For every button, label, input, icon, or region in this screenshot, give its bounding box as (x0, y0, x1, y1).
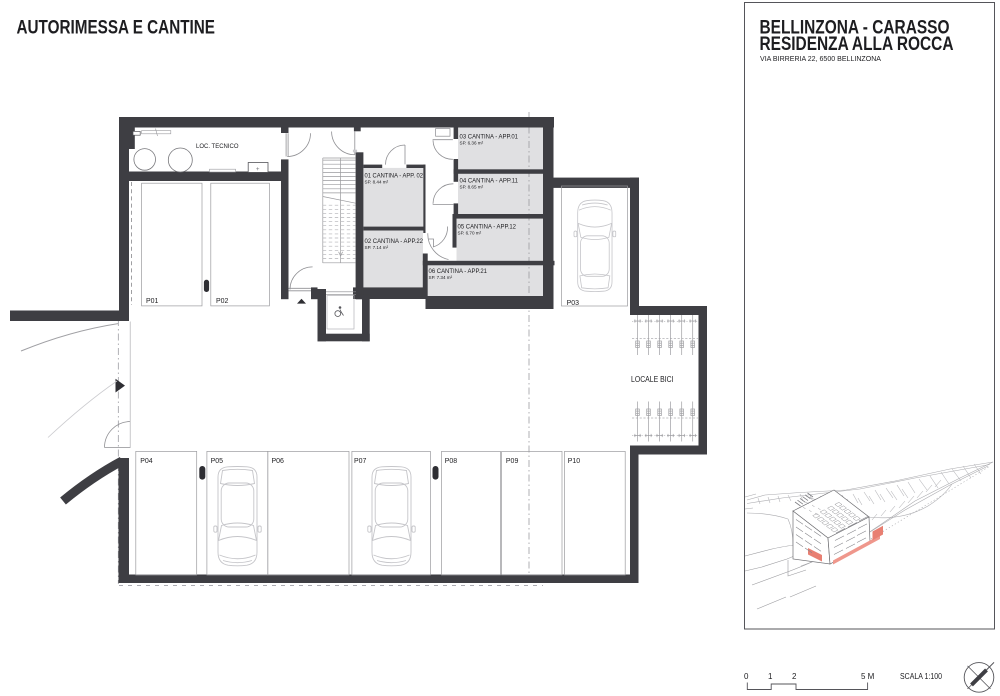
svg-text:SP. 7.34 m²: SP. 7.34 m² (429, 275, 453, 280)
svg-text:P02: P02 (216, 298, 229, 305)
svg-text:04 CANTINA - APP.11: 04 CANTINA - APP.11 (460, 177, 519, 184)
svg-text:SP. 8.65 m²: SP. 8.65 m² (460, 184, 484, 189)
svg-text:LOC. TECNICO: LOC. TECNICO (196, 143, 239, 150)
svg-text:5 M: 5 M (861, 672, 875, 681)
svg-text:P03: P03 (567, 300, 580, 307)
svg-text:01 CANTINA - APP. 02: 01 CANTINA - APP. 02 (365, 173, 424, 180)
svg-text:05 CANTINA - APP.12: 05 CANTINA - APP.12 (458, 223, 517, 230)
svg-text:SP. 6.36 m²: SP. 6.36 m² (460, 140, 484, 145)
svg-text:P08: P08 (445, 458, 458, 465)
svg-text:P04: P04 (140, 458, 153, 465)
svg-text:P07: P07 (354, 458, 367, 465)
svg-text:SCALA 1:100: SCALA 1:100 (900, 672, 942, 681)
svg-text:SP. 7.14 m²: SP. 7.14 m² (365, 245, 389, 250)
svg-text:LOCALE BICI: LOCALE BICI (631, 375, 674, 384)
svg-text:P05: P05 (211, 458, 224, 465)
svg-text:RESIDENZA ALLA ROCCA: RESIDENZA ALLA ROCCA (760, 34, 954, 55)
svg-text:P01: P01 (146, 298, 159, 305)
svg-text:P06: P06 (272, 458, 285, 465)
svg-text:06 CANTINA - APP.21: 06 CANTINA - APP.21 (429, 268, 488, 275)
svg-text:AUTORIMESSA E CANTINE: AUTORIMESSA E CANTINE (17, 17, 216, 38)
svg-text:1: 1 (768, 672, 773, 681)
svg-text:2: 2 (792, 672, 797, 681)
svg-text:SP. 6.70 m²: SP. 6.70 m² (458, 230, 482, 235)
svg-text:0: 0 (744, 672, 749, 681)
svg-text:SP. 8.44 m²: SP. 8.44 m² (365, 180, 389, 185)
svg-text:P09: P09 (506, 458, 519, 465)
svg-text:03 CANTINA - APP.01: 03 CANTINA - APP.01 (460, 133, 519, 140)
svg-text:P10: P10 (568, 458, 581, 465)
svg-text:VIA BIRRERIA 22, 6500 BELLINZO: VIA BIRRERIA 22, 6500 BELLINZONA (760, 54, 881, 63)
svg-text:02 CANTINA - APP.22: 02 CANTINA - APP.22 (365, 238, 424, 245)
